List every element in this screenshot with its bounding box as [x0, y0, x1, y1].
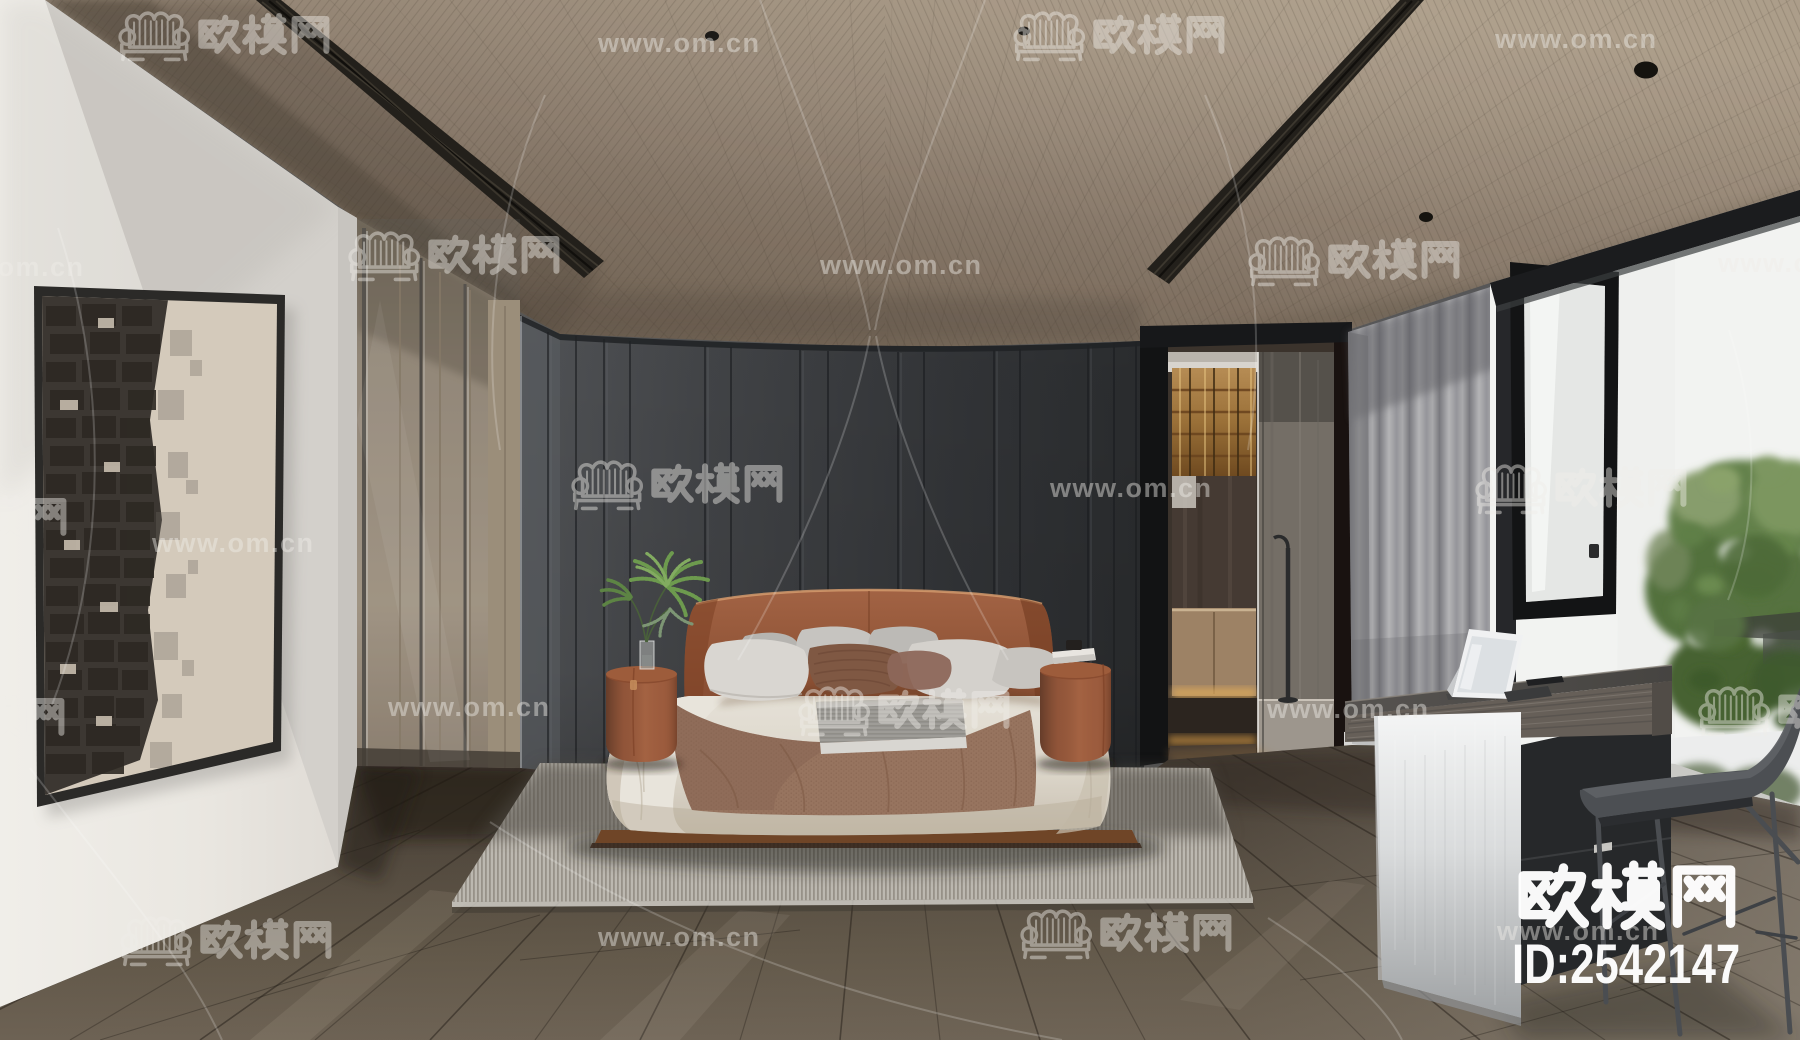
svg-text:ID:2542147: ID:2542147 [1512, 933, 1740, 995]
